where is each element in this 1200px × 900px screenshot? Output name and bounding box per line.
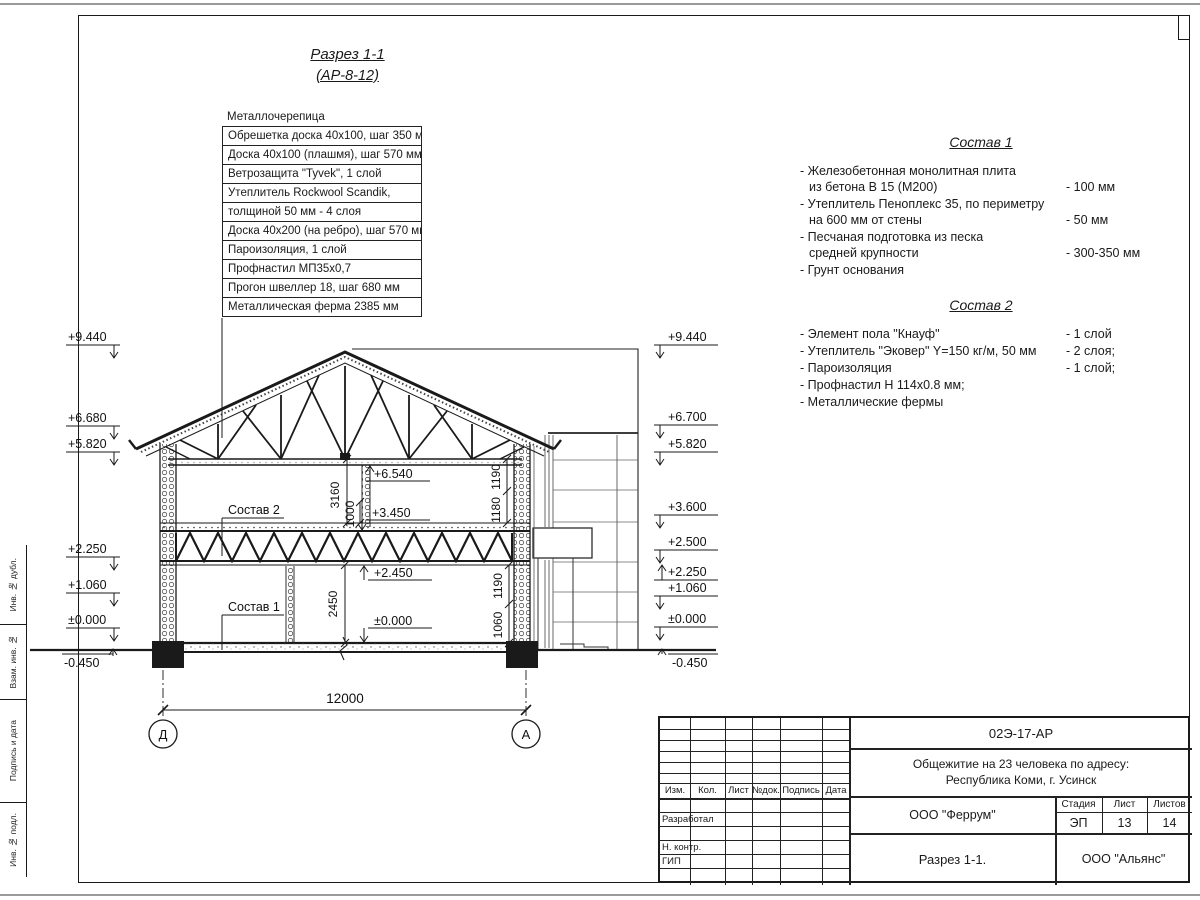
sostav2-item-text: - Пароизоляция [800,360,1066,376]
section-title-line1: Разрез 1-1 [255,44,440,66]
sostav1-item-text: - Песчаная подготовка из песка средней к… [800,229,1066,261]
callout-row: толщиной 50 мм - 4 слоя [223,203,421,222]
dim-1060: 1060 [491,611,505,638]
roof-layers-callout: Металлочерепица Обрешетка доска 40х100, … [222,110,422,317]
level-floor2: +3.450 [372,506,411,520]
tb-sheets-label: Листов [1147,796,1192,812]
drawing-sheet: { "page": {"ink": "#1a1a1a", "thin_line"… [0,0,1200,900]
floor-truss [160,523,530,565]
level-right: +6.700 [668,410,707,424]
sostav2-item-text: - Металлические фермы [800,394,1066,410]
sostav2-ref-label: Состав 2 [228,503,280,517]
roof-truss-web [166,366,524,459]
sostav1-block: Состав 1 - Железобетонная монолитная пли… [800,134,1162,279]
tb-project-name: Общежитие на 23 человека по адресу: Респ… [850,748,1192,796]
tb-stage-value: ЭП [1055,812,1102,833]
foundation-right [506,641,538,668]
dim-1180: 1180 [489,497,503,523]
axis-lines [149,670,540,748]
sostav2-item-value: - 1 слой; [1066,360,1162,376]
sostav1-item: - Грунт основания [800,262,1162,278]
sostav2-item: - Металлические фермы [800,394,1162,410]
callout-row: Обрешетка доска 40х100, шаг 350 мм [223,127,421,146]
sostav1-item-text: - Грунт основания [800,262,1066,278]
dim-2450: 2450 [326,590,340,617]
tb-org: ООО "Феррум" [850,796,1055,833]
sostav2-item-text: - Элемент пола "Кнауф" [800,326,1066,342]
sostav1-item: - Песчаная подготовка из песка средней к… [800,229,1162,261]
axis-left-letter: Д [159,727,168,742]
tb-col-izm: Изм. [660,783,690,798]
callout-table: Обрешетка доска 40х100, шаг 350 мм Доска… [222,126,422,317]
sostav2-title: Состав 2 [800,297,1162,313]
elevation-marks-left [62,345,120,656]
sostav2-item: - Пароизоляция - 1 слой; [800,360,1162,376]
sostav1-item: - Утеплитель Пеноплекс 35, по периметру … [800,196,1162,228]
sostav1-item-text: - Утеплитель Пеноплекс 35, по периметру … [800,196,1066,228]
tb-sheet-label: Лист [1102,796,1147,812]
level-left: +6.680 [68,411,107,425]
sostav2-item: - Утеплитель "Эковер" Y=150 кг/м, 50 мм … [800,343,1162,359]
level-left: +9.440 [68,330,107,344]
tb-col-data: Дата [822,783,850,798]
level-left: +2.250 [68,542,107,556]
callout-row: Профнастил МП35х0,7 [223,260,421,279]
level-right: +9.440 [668,330,707,344]
level-right: +5.820 [668,437,707,451]
level-left: -0.450 [64,656,99,670]
tb-doc-code: 02Э-17-АР [850,718,1192,748]
callout-row: Прогон швеллер 18, шаг 680 мм [223,279,421,298]
tb-col-dok: №док. [752,783,780,798]
sostav1-item: - Железобетонная монолитная плита из бет… [800,163,1162,195]
sostav2-block: Состав 2 - Элемент пола "Кнауф" - 1 слой… [800,297,1162,411]
title-block: Изм. Кол. Лист №док. Подпись Дата Разраб… [658,716,1190,883]
tb-col-kol: Кол. [690,783,725,798]
sostav2-item-value: - 2 слоя; [1066,343,1162,359]
level-chord: +2.450 [374,566,413,580]
tb-sheets-value: 14 [1147,812,1192,833]
sostav2-item: - Профнастил Н 114х0.8 мм; [800,377,1162,393]
tb-col-podpis: Подпись [780,783,822,798]
level-right: +3.600 [668,500,707,514]
sostav2-item-value: - 1 слой [1066,326,1162,342]
tb-org2: ООО "Альянс" [1055,833,1192,885]
level-right: +2.500 [668,535,707,549]
sostav1-title: Состав 1 [800,134,1162,150]
axis-right-letter: А [522,727,531,742]
callout-row: Ветрозащита "Tyvek", 1 слой [223,165,421,184]
tb-role-ncontrol: Н. контр. [660,840,726,854]
level-left: ±0.000 [68,613,106,627]
sostav1-item-text: - Железобетонная монолитная плита из бет… [800,163,1066,195]
foundation-left [152,641,184,668]
sostav2-item-text: - Утеплитель "Эковер" Y=150 кг/м, 50 мм [800,343,1066,359]
callout-row: Утеплитель Rockwool Scandik, [223,184,421,203]
callout-row: Доска 40х100 (плашмя), шаг 570 мм [223,146,421,165]
sostav1-item-value: - 100 мм [1066,179,1162,195]
callout-header: Металлочерепица [222,110,422,126]
dim-1000: 1000 [343,500,357,527]
level-left: +5.820 [68,437,107,451]
sostav1-ref-label: Состав 1 [228,600,280,614]
level-right: +2.250 [668,565,707,579]
dim-span: 12000 [326,691,364,706]
level-ceiling: +6.540 [374,467,413,481]
sostav1-item-value: - 50 мм [1066,212,1162,228]
tb-sheet-value: 13 [1102,812,1147,833]
sostav2-item: - Элемент пола "Кнауф" - 1 слой [800,326,1162,342]
section-title: Разрез 1-1 (АР-8-12) [255,44,440,87]
level-right: ±0.000 [668,612,706,626]
tb-role-gip: ГИП [660,854,726,868]
tb-drawing-title: Разрез 1-1. [850,833,1055,885]
level-right: +1.060 [668,581,707,595]
dim-1190-bottom: 1190 [491,573,505,599]
callout-row: Металлическая ферма 2385 мм [223,298,421,317]
level-floor1: ±0.000 [374,614,412,628]
level-right: -0.450 [672,656,707,670]
section-title-line2: (АР-8-12) [255,66,440,87]
callout-row: Пароизоляция, 1 слой [223,241,421,260]
tb-col-list: Лист [725,783,752,798]
tb-role-developer: Разработал [660,812,726,826]
sostav-refs [222,518,284,650]
dim-1190-top: 1190 [489,464,503,490]
sostav1-item-value: - 300-350 мм [1066,245,1162,261]
level-left: +1.060 [68,578,107,592]
dim-3160: 3160 [328,481,342,508]
sostav2-item-text: - Профнастил Н 114х0.8 мм; [800,377,1066,393]
callout-row: Доска 40х200 (на ребро), шаг 570 мм [223,222,421,241]
tb-stage-label: Стадия [1055,796,1102,812]
